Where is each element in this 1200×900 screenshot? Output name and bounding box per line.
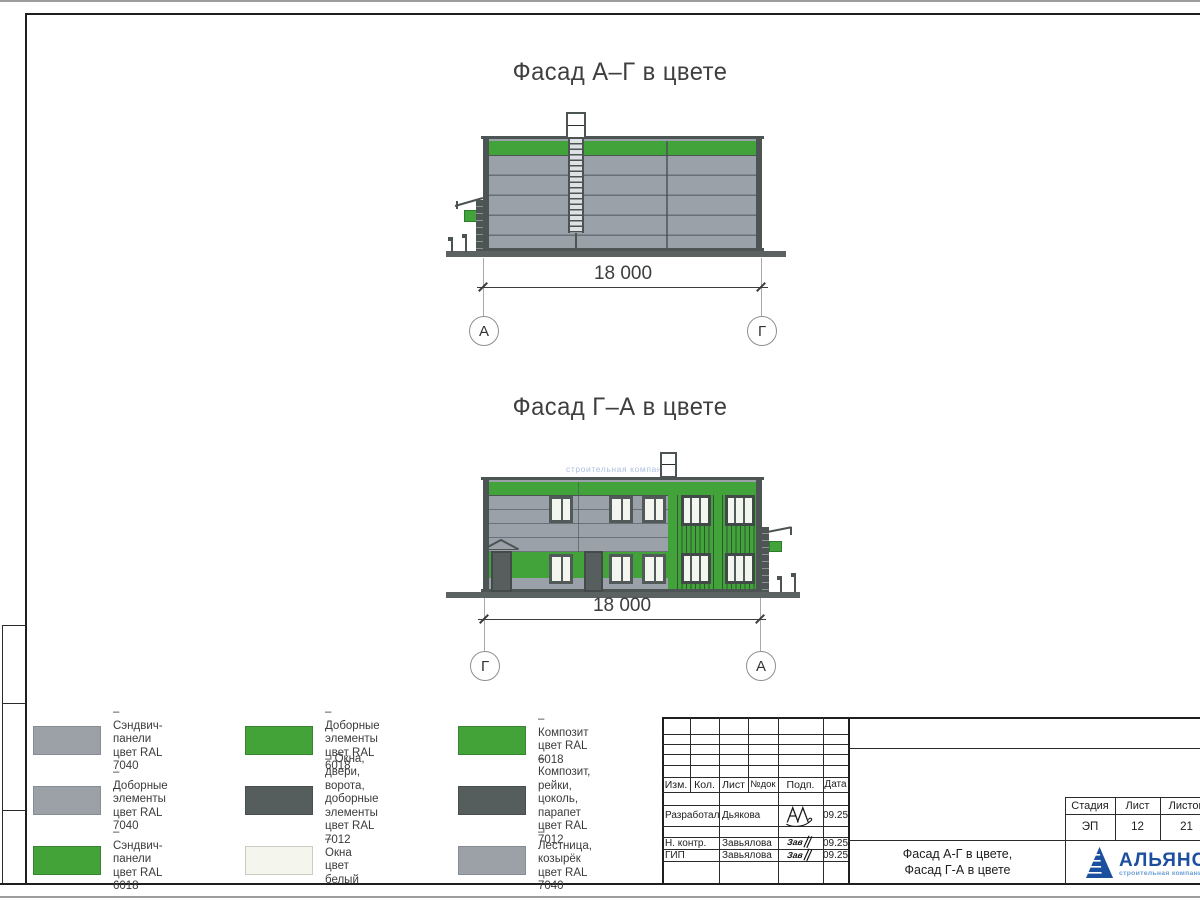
tb-role: Н. контр. <box>662 837 719 849</box>
tb-sheet-value: 12 <box>1115 814 1160 840</box>
window <box>609 554 633 584</box>
tb-stage-label: Стадия <box>1065 797 1115 814</box>
margin-divider-3 <box>2 810 26 811</box>
color-swatch <box>458 846 526 875</box>
window <box>549 496 573 523</box>
legend-item: – Доборные элементы цвет RAL 6018 <box>245 725 380 755</box>
facade1-green-band <box>484 141 761 156</box>
frame-top-line <box>25 13 1200 15</box>
facade2-dim-line <box>478 619 766 620</box>
ladder-lower-post <box>575 233 577 250</box>
window <box>725 553 755 584</box>
tb-name: Дьякова <box>719 805 778 826</box>
color-swatch <box>33 846 101 875</box>
frame-bottom-line <box>0 883 1200 885</box>
legend-item: – Окна цвет белый <box>245 845 359 875</box>
margin-divider-1 <box>2 625 26 626</box>
facade2-roof-box <box>660 452 677 478</box>
tb-header-kol: Кол. <box>690 777 719 792</box>
facade2-watermark: строительная компания <box>566 464 673 474</box>
window <box>549 554 573 584</box>
tb-sheets-value: 21 <box>1160 814 1200 840</box>
signature <box>781 805 821 827</box>
facade2-ext-line-right <box>760 598 761 651</box>
color-swatch <box>245 726 313 755</box>
tb-sheets-label: Листов <box>1160 797 1200 814</box>
company-logo-subtitle: строительная компания <box>1119 870 1200 877</box>
legend-item: – Лестница, козырёк цвет RAL 7040 <box>458 845 592 875</box>
tb-name: Завьялова <box>719 849 778 861</box>
facade1-dim-line <box>477 287 768 288</box>
legend-item: – Окна, двери, ворота, доборные элементы… <box>245 785 379 815</box>
tb-role: Разработал <box>662 805 719 826</box>
tb-line <box>662 792 848 793</box>
facade2-post-2-cap <box>791 573 796 577</box>
facade2-post-1 <box>780 579 782 592</box>
facade2-post-1-cap <box>777 576 782 580</box>
facade1-post-1 <box>451 240 453 252</box>
facade1-corner-right <box>756 139 762 251</box>
facade1-corner-left <box>483 139 489 251</box>
facade2-roof-box-divider <box>662 464 675 465</box>
margin-divider-2 <box>2 703 26 704</box>
frame-left-line <box>25 13 27 885</box>
facade1-post-2 <box>465 237 467 252</box>
tb-header-podp: Подп. <box>778 777 823 792</box>
window <box>681 553 711 584</box>
signature: Зав <box>781 847 821 862</box>
tb-header-list: Лист <box>719 777 748 792</box>
tb-header-ndok: №док <box>748 777 778 792</box>
facade2-slat-strip-2 <box>714 495 722 589</box>
company-logo-name: АЛЬЯНС <box>1119 850 1200 872</box>
facade1-title: Фасад А–Г в цвете <box>454 58 787 87</box>
facade1-canopy-hanger <box>456 201 458 209</box>
legend-item: – Сэндвич-панели цвет RAL 6018 <box>33 845 163 875</box>
facade1-vertical-joint <box>666 141 668 251</box>
facade2-post-2 <box>794 576 796 592</box>
drawing-sheet: Фасад А–Г в цвете 18 000 А Г <box>0 0 1200 900</box>
window <box>681 495 711 526</box>
paper-edge-top <box>0 0 1200 2</box>
tb-sheet-title: Фасад А-Г в цвете, Фасад Г-А в цвете <box>850 840 1065 883</box>
company-logo-icon <box>1086 847 1113 878</box>
facade1-post-2-cap <box>462 234 467 238</box>
window <box>642 496 666 523</box>
roof-access-ladder <box>568 139 584 233</box>
legend-item: – Композит цвет RAL 6018 <box>458 725 588 755</box>
paper-edge-bottom <box>0 896 1200 898</box>
tb-date: 09.25 <box>823 849 848 861</box>
tb-line <box>662 717 1200 719</box>
tb-sheet-label: Лист <box>1115 797 1160 814</box>
color-swatch <box>33 726 101 755</box>
facade2-corner-left <box>483 480 489 592</box>
tb-header-data: Дата <box>823 777 848 792</box>
window <box>725 495 755 526</box>
tb-line <box>848 748 1200 749</box>
facade2-side-green-box <box>769 541 782 552</box>
facade1-side-stair <box>476 200 483 251</box>
svg-text:Зав: Зав <box>786 837 804 847</box>
facade2-slat-strip-1 <box>668 495 676 589</box>
legend-item: – Сэндвич-панели цвет RAL 7040 <box>33 725 163 755</box>
facade2-axis-right: А <box>746 651 776 681</box>
ladder-cage-divider <box>568 125 584 126</box>
facade2-side-stair <box>762 527 769 592</box>
tb-line <box>778 717 779 883</box>
tb-role: ГИП <box>662 849 719 861</box>
color-swatch <box>33 786 101 815</box>
facade1-axis-right: Г <box>747 316 777 346</box>
svg-text:Зав: Зав <box>786 850 804 860</box>
facade1-panel-joints <box>489 156 756 249</box>
door1-canopy-base <box>485 549 517 550</box>
window <box>609 496 633 523</box>
legend-item: – Композит, рейки, цоколь, парапет цвет … <box>458 785 590 815</box>
facade2-canopy-hanger <box>790 527 792 535</box>
facade2-axis-left: Г <box>470 651 500 681</box>
facade1-dim-text: 18 000 <box>523 263 723 285</box>
tb-date: 09.25 <box>823 805 848 826</box>
entrance-door-1 <box>491 551 512 592</box>
legend-item: – Доборные элементы цвет RAL 7040 <box>33 785 168 815</box>
facade2-green-top-band <box>484 482 761 496</box>
color-swatch <box>458 726 526 755</box>
margin-column-line <box>2 625 3 883</box>
facade1-post-1-cap <box>448 237 453 241</box>
facade2-ext-line-left <box>484 598 485 651</box>
facade1-ground <box>446 251 786 257</box>
facade1-axis-left: А <box>469 316 499 346</box>
color-swatch <box>458 786 526 815</box>
tb-stage-value: ЭП <box>1065 814 1115 840</box>
window <box>642 554 666 584</box>
color-swatch <box>245 786 313 815</box>
facade2-vertical-joint <box>578 482 579 552</box>
facade2-dim-text: 18 000 <box>522 595 722 617</box>
tb-name: Завьялова <box>719 837 778 849</box>
color-swatch <box>245 846 313 875</box>
tb-date: 09.25 <box>823 837 848 849</box>
entrance-door-2 <box>584 551 603 592</box>
facade2-title: Фасад Г–А в цвете <box>454 393 787 422</box>
tb-header-izm: Изм. <box>662 777 690 792</box>
